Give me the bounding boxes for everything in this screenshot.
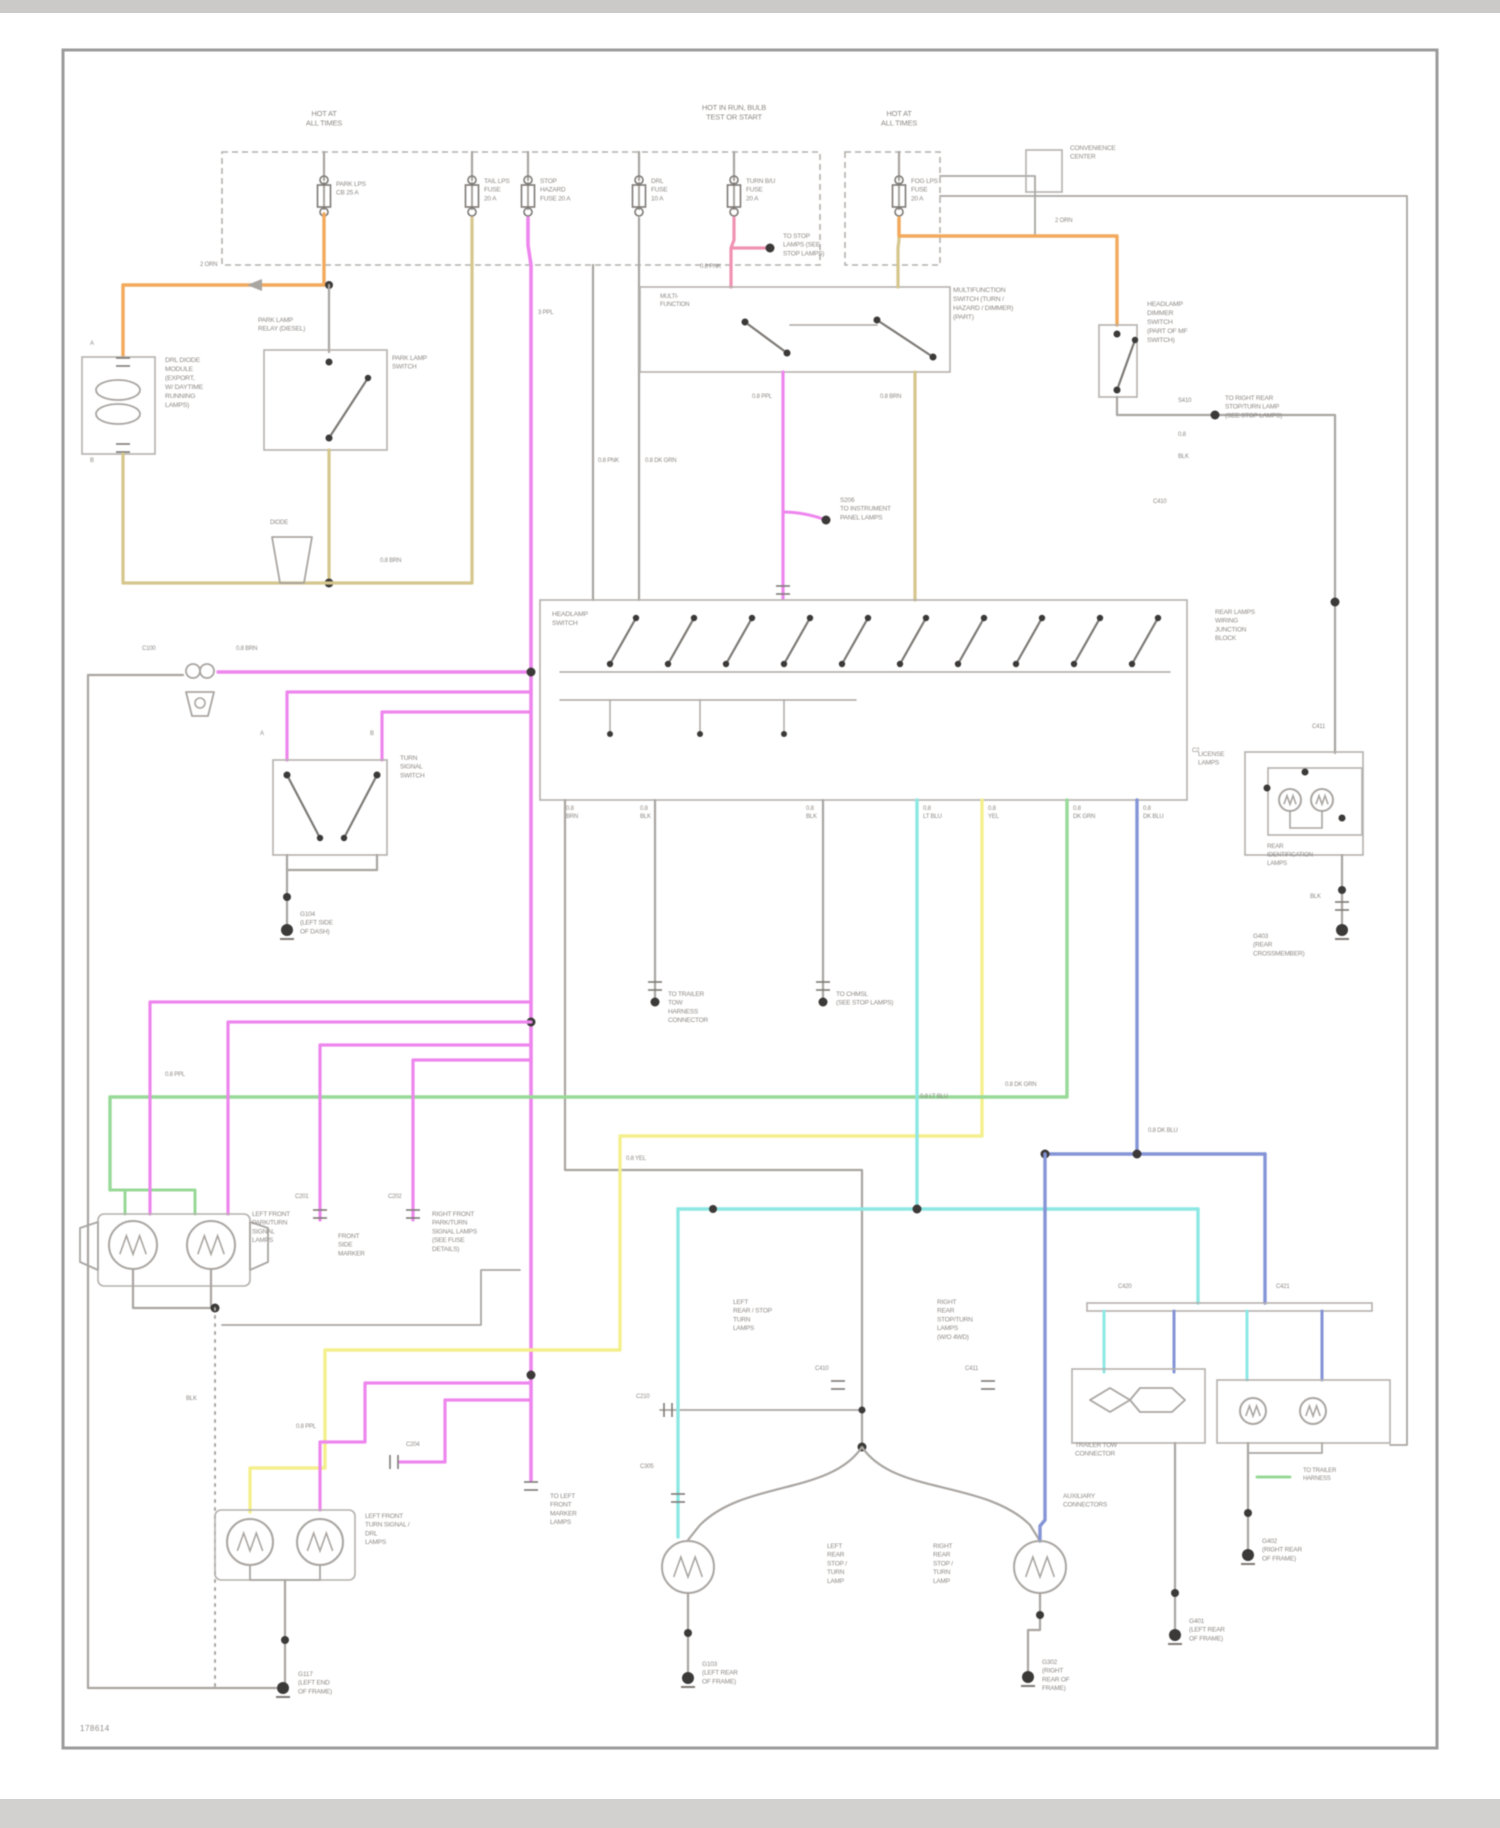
code-blk: BLK — [1178, 454, 1189, 460]
park-sw-blade-p1 — [326, 435, 332, 441]
rose-feed — [731, 218, 734, 287]
turn-lamp-join — [250, 1565, 320, 1580]
orange-code-2: 2 ORN — [1055, 218, 1072, 224]
hs-blade-1 — [610, 618, 636, 664]
lf-turn-label: LEFT FRONTTURN SIGNAL /DRLLAMPS — [365, 1513, 410, 1546]
ts-blade-1-p1 — [284, 772, 290, 778]
c2-label: C2 — [1192, 748, 1200, 754]
inline-connector-c100-2 — [200, 664, 214, 678]
lic-t2 — [1302, 769, 1309, 776]
c100-label: C100 — [142, 646, 156, 652]
pink-fan-1 — [150, 1002, 531, 1214]
hs-stub-dot3 — [781, 731, 787, 737]
hs-blade-4 — [784, 618, 810, 664]
exit-code-7: 0.8DK BLU — [1143, 806, 1163, 820]
mf-blade-2-p2 — [930, 354, 936, 360]
c421-label: C421 — [1276, 1284, 1290, 1290]
relay-coil-2 — [96, 404, 140, 424]
ppl-code: 0.8 PPL — [752, 394, 773, 400]
marker-label: FRONTSIDEMARKER — [338, 1233, 365, 1257]
g103 — [682, 1672, 694, 1684]
c410b-label: C410 — [815, 1366, 829, 1372]
rear-junction-label: REAR LAMPSWIRINGJUNCTIONBLOCK — [1215, 609, 1256, 642]
hs-blade-9-p2 — [1097, 615, 1103, 621]
c420-label: C420 — [1118, 1284, 1132, 1290]
fuse-block-hot-box-2 — [845, 152, 940, 265]
yellow-run — [250, 800, 982, 1512]
dim-blade-p2 — [1132, 337, 1138, 343]
hs-blade-7-p1 — [955, 661, 961, 667]
lf-marker-lamp-filament — [198, 1236, 224, 1254]
mf-label: MULTIFUNCTIONSWITCH (TURN /HAZARD / DIMM… — [953, 287, 1013, 321]
x-top-dot — [859, 1407, 866, 1414]
lr-stop-lamp — [662, 1541, 714, 1593]
hs-blade-1-p1 — [607, 661, 613, 667]
hot-label-3: HOT ATALL TIMES — [881, 109, 917, 128]
g403-label: G403(REARCROSSMEMBER) — [1253, 933, 1304, 957]
hs-blade-10-p2 — [1155, 615, 1161, 621]
splice-2-label: TO CHMSL(SEE STOP LAMPS) — [836, 991, 893, 1007]
turn-gnd-dot — [281, 1636, 289, 1644]
g402-label: G402(RIGHT REAROF FRAME) — [1262, 1538, 1302, 1562]
fuse1-label: PARK LPSCB 25 A — [336, 181, 367, 197]
hs-blade-3-p1 — [723, 661, 729, 667]
green-sub — [110, 1190, 195, 1214]
ts-splice — [283, 893, 291, 901]
mf-left-label: MULTI-FUNCTION — [660, 294, 689, 308]
code-dkgrn: 0.8 DK GRN — [645, 458, 676, 464]
g103-label: G103(LEFT REAROF FRAME) — [702, 1661, 738, 1685]
exit-code-4: 0.8LT BLU — [923, 806, 942, 820]
exit-code-2: 0.8BLK — [640, 806, 651, 820]
c411b-label: C411 — [965, 1366, 979, 1372]
rose-splice — [766, 244, 775, 253]
pink-fan-4 — [413, 1060, 531, 1220]
code-08: 0.8 — [1178, 432, 1187, 438]
hs-blade-6 — [900, 618, 926, 664]
hs-blade-4-p2 — [807, 615, 813, 621]
green-run — [110, 800, 1067, 1190]
orange-park-feed — [123, 214, 324, 357]
lamp-gnd-right — [222, 1270, 520, 1325]
splice-2 — [819, 998, 828, 1007]
lf-turn-lamp-group — [215, 1510, 355, 1580]
ts-blade-1-p2 — [317, 835, 323, 841]
lf-turn-lamp-2 — [297, 1519, 343, 1565]
sheet-border — [63, 50, 1437, 1748]
cyan-dot-2 — [709, 1205, 717, 1213]
hs-blade-9-p1 — [1071, 661, 1077, 667]
c410-label: C410 — [1153, 499, 1167, 505]
main-pink-bus — [528, 218, 531, 1480]
drl-relay-label: DRL DIODEMODULE(EXPORT,W/ DAYTIMERUNNING… — [165, 357, 204, 409]
lf-turn-lamp-2-filament — [307, 1533, 332, 1551]
park-sw-blade — [329, 378, 368, 438]
orange-code: 2 ORN — [200, 262, 217, 268]
trailer-label: TRAILER TOWCONNECTOR — [1075, 1442, 1118, 1458]
brn-code: 0.8 BRN — [236, 646, 257, 652]
brn-code-2: 0.8 BRN — [880, 394, 901, 400]
c411-label: C411 — [1312, 724, 1326, 730]
park-sw-top-label: PARK LAMPRELAY (DIESEL) — [258, 317, 305, 333]
fuse2-label: TAIL LPSFUSE20 A — [484, 178, 510, 202]
ltblu-code: 0.8 LT BLU — [920, 1094, 948, 1100]
multifunction-sw-box — [640, 287, 950, 372]
hs-blade-4-p1 — [781, 661, 787, 667]
lic-int-1 — [1290, 811, 1322, 828]
hs-stub-dot2 — [697, 731, 703, 737]
g117-label: G117(LEFT ENDOF FRAME) — [298, 1671, 332, 1695]
rear-feed-run — [1117, 397, 1335, 753]
license-below-label: REARIDENTIFICATIONLAMPS — [1267, 843, 1313, 867]
splice-1-label: TO TRAILERTOWHARNESSCONNECTOR — [668, 991, 708, 1024]
c201-label: C201 — [295, 1194, 309, 1200]
s410-splice — [1211, 411, 1220, 420]
aux-gnd-dot — [1244, 1509, 1252, 1517]
aux-lamp-1-filament — [1246, 1406, 1260, 1416]
dim-t1 — [1114, 331, 1121, 338]
splice-1 — [651, 998, 660, 1007]
aux-conn-label: AUXILIARYCONNECTORS — [1063, 1493, 1108, 1509]
exit-code-5: 0.8YEL — [988, 806, 1000, 820]
aux-lamp-2-filament — [1306, 1406, 1320, 1416]
g401 — [1169, 1629, 1181, 1641]
trailer-gnd-dot — [1171, 1589, 1179, 1597]
aux-conn-bar — [1087, 1303, 1372, 1311]
diode-label: DIODE — [270, 520, 288, 526]
hs-blade-6-p1 — [897, 661, 903, 667]
rose-code: 0.8 PNK — [700, 264, 721, 270]
fuse6-label: FOG LPSFUSE20 A — [911, 178, 939, 202]
left-edge-gnd-run — [88, 675, 276, 1688]
ts-label: TURNSIGNALSWITCH — [400, 755, 425, 779]
conv-center-label: CONVENIENCECENTER — [1070, 145, 1116, 161]
lr-lamps-label: LEFTREAR / STOPTURNLAMPS — [733, 1299, 772, 1332]
pink-fan-2 — [228, 1022, 531, 1214]
scan-bottom-strip — [0, 1799, 1500, 1828]
lf-park-lamp-filament — [120, 1236, 146, 1254]
g302-label: G302(RIGHTREAR OFFRAME) — [1042, 1659, 1070, 1692]
trailer-sym-2 — [1130, 1388, 1185, 1412]
lr-gnd-dot — [684, 1629, 692, 1637]
magenta-splice-label: S206TO INSTRUMENTPANEL LAMPS — [840, 497, 891, 521]
lf-park-label: LEFT FRONTPARK/TURNSIGNALLAMPS — [252, 1211, 290, 1244]
rr-stop-lamp — [1014, 1541, 1066, 1593]
relay-coil-1 — [96, 380, 140, 400]
ppl-code-2: 0.8 PPL — [165, 1072, 186, 1078]
rr-lamp-gnd — [1028, 1593, 1040, 1677]
lf-marker-lamp — [187, 1221, 235, 1269]
inline-connector-c100-1 — [186, 664, 200, 678]
ts-pin-b: B — [370, 731, 374, 737]
ts-out-2 — [287, 855, 377, 870]
ts-pin-a: A — [260, 731, 264, 737]
c305-label: C305 — [640, 1464, 654, 1470]
hs-blade-5-p1 — [839, 661, 845, 667]
hs-blade-2-p2 — [691, 615, 697, 621]
tan-code: 0.8 BRN — [380, 558, 401, 564]
blk-label: BLK — [186, 1396, 197, 1402]
pink-hook-1 — [320, 1383, 531, 1510]
lr-stop-lamp-filament — [674, 1557, 703, 1577]
x-leg-left — [688, 1447, 862, 1540]
conv-center-box — [1026, 150, 1062, 192]
pink-branch-2 — [287, 692, 531, 760]
license-lamp-1-filament — [1284, 796, 1296, 804]
lr-lamp-label: LEFTREARSTOP /TURNLAMP — [827, 1543, 847, 1585]
park-sw-label: PARK LAMPSWITCH — [392, 355, 427, 371]
rose-splice-label: TO STOPLAMPS (SEESTOP LAMPS) — [783, 233, 824, 257]
g402 — [1242, 1549, 1254, 1561]
drl-relay-box — [82, 357, 155, 454]
dim-blade-p1 — [1114, 387, 1120, 393]
g302 — [1022, 1671, 1034, 1683]
g104-label: G104(LEFT SIDEOF DASH) — [300, 911, 334, 935]
trailer-sym-1 — [1090, 1388, 1130, 1412]
ts-blade-2 — [344, 775, 377, 838]
park-lamp-sw-box — [264, 350, 387, 450]
rear-dot — [1331, 598, 1340, 607]
hs-blade-1-p2 — [633, 615, 639, 621]
pink-bus-code: 3 PPL — [538, 310, 554, 316]
blue-dot-1 — [1133, 1150, 1142, 1159]
s410-note: TO RIGHT REARSTOP/TURN LAMP(SEE STOP LAM… — [1225, 395, 1282, 419]
lic-blk: BLK — [1310, 894, 1321, 900]
relay-pin-a: A — [90, 341, 94, 347]
c210-label: C210 — [636, 1394, 650, 1400]
mf-blade-2 — [877, 320, 933, 357]
hs-blade-8 — [1016, 618, 1042, 664]
bus-dot-3 — [527, 1371, 536, 1380]
fuse3-label: STOPHAZARDFUSE 20 A — [540, 178, 571, 202]
license-lamp-inner — [1268, 768, 1362, 835]
license-lamp-1 — [1279, 789, 1301, 811]
hs-blade-5 — [842, 618, 868, 664]
relay-pin-b: B — [90, 458, 94, 464]
hs-stub-dot1 — [607, 731, 613, 737]
mf-blade-1-p2 — [784, 350, 790, 356]
headlamp-sw-label: HEADLAMPSWITCH — [552, 611, 588, 627]
hs-blade-10 — [1132, 618, 1158, 664]
hs-blade-7-p2 — [981, 615, 987, 621]
aux-lamp-1 — [1240, 1398, 1266, 1424]
exit-code-3: 0.8BLK — [806, 806, 817, 820]
hs-blade-2 — [668, 618, 694, 664]
hs-blade-10-p1 — [1129, 661, 1135, 667]
g401-label: G401(LEFT REAROF FRAME) — [1189, 1618, 1225, 1642]
diode-connector — [272, 537, 312, 583]
hs-blade-8-p2 — [1039, 615, 1045, 621]
c202-label: C202 — [388, 1194, 402, 1200]
lf-turn-lamp-1-filament — [237, 1533, 262, 1551]
aux-lamp-2 — [1300, 1398, 1326, 1424]
exterior-lamps-wiring-diagram: HOT ATALL TIMESHOT IN RUN, BULBTEST OR S… — [0, 13, 1500, 1799]
hot-label-1: HOT ATALL TIMES — [306, 109, 342, 128]
bus-dot-1 — [527, 668, 536, 677]
c204-label: C204 — [406, 1442, 420, 1448]
conv-center-elbow — [940, 176, 1035, 236]
rr-lamps-label: RIGHTREARSTOP/TURNLAMPS(W/O 4WD) — [937, 1299, 973, 1341]
lf-turn-lamp-1 — [227, 1519, 273, 1565]
rr-stop-lamp-filament — [1026, 1557, 1055, 1577]
pink-hook-2 — [400, 1400, 531, 1462]
hs-blade-7 — [958, 618, 984, 664]
lamp1-gnd — [133, 1269, 215, 1308]
hs-blade-2-p1 — [665, 661, 671, 667]
rr-lamp-label: RIGHTREARSTOP /TURNLAMP — [933, 1543, 953, 1585]
sealed-conn-circle — [195, 698, 205, 708]
trailer-conn-box — [1072, 1369, 1205, 1443]
license-label: LICENSELAMPS — [1198, 751, 1225, 767]
page-ref-arrow — [247, 279, 262, 291]
pink-branch-3 — [382, 712, 531, 760]
s410-label: S410 — [1178, 398, 1192, 404]
blue-left-drop — [1040, 1154, 1045, 1541]
g117 — [277, 1682, 289, 1694]
magenta-splice-curve — [783, 512, 826, 520]
magenta-splice — [822, 516, 831, 525]
park-sw-t1 — [326, 359, 333, 366]
rf-park-label: RIGHT FRONTPARK/TURNSIGNAL LAMPS(SEE FUS… — [432, 1211, 478, 1253]
rr-gnd-dot — [1036, 1611, 1044, 1619]
ts-blade-2-p1 — [374, 772, 380, 778]
x-leg-right — [862, 1447, 1040, 1541]
license-lamp-2 — [1311, 789, 1333, 811]
hs-blade-6-p2 — [923, 615, 929, 621]
cyan-dot-1 — [913, 1205, 922, 1214]
fuse4-label: DRLFUSE10 A — [651, 178, 668, 202]
hs-blade-9 — [1074, 618, 1100, 664]
ts-blade-1 — [287, 775, 320, 838]
pink-end-label: TO LEFTFRONTMARKERLAMPS — [550, 1493, 577, 1526]
pink-fan-3 — [320, 1045, 531, 1220]
dim-blade — [1117, 340, 1135, 390]
aux-gnd-stub — [1248, 1443, 1322, 1453]
screenshot-root: HOT ATALL TIMESHOT IN RUN, BULBTEST OR S… — [0, 0, 1500, 1828]
aux-lamp-box — [1217, 1380, 1390, 1443]
scan-top-strip — [0, 0, 1500, 13]
dimmer-label: HEADLAMPDIMMERSWITCH(PART OF MFSWITCH) — [1147, 301, 1188, 344]
g403 — [1336, 924, 1348, 936]
ppl-code-3: 0.8 PPL — [296, 1424, 317, 1430]
trailer-grn-label: TO TRAILERHARNESS — [1303, 1468, 1337, 1482]
hs-blade-8-p1 — [1013, 661, 1019, 667]
wiring-diagram-sheet: HOT ATALL TIMESHOT IN RUN, BULBTEST OR S… — [0, 13, 1500, 1799]
sealed-conn — [186, 692, 214, 716]
park-sw-blade-p2 — [365, 375, 371, 381]
grn-code: 0.8 DK GRN — [1005, 1082, 1036, 1088]
hs-blade-5-p2 — [865, 615, 871, 621]
fuse5-label: TURN B/UFUSE20 A — [746, 178, 776, 202]
yel-code: 0.8 YEL — [626, 1156, 647, 1162]
hot-label-2: HOT IN RUN, BULBTEST OR START — [702, 103, 766, 122]
hs-blade-3 — [726, 618, 752, 664]
tan-loop — [123, 218, 472, 583]
right-tall-run — [940, 196, 1407, 1445]
code-pnk: 0.8 PNK — [598, 458, 619, 464]
g104 — [281, 924, 293, 936]
lic-dot — [1338, 886, 1346, 894]
lic-t1 — [1264, 785, 1271, 792]
ts-blade-2-p2 — [341, 835, 347, 841]
mf-blade-1-p1 — [742, 319, 748, 325]
hs-blade-3-p2 — [749, 615, 755, 621]
lf-park-lamp — [109, 1221, 157, 1269]
lic-t3 — [1339, 815, 1346, 822]
diagram-code: 178614 — [80, 1724, 110, 1733]
dkblu-code: 0.8 DK BLU — [1148, 1128, 1178, 1134]
mf-blade-1 — [745, 322, 787, 353]
mf-blade-2-p1 — [874, 317, 880, 323]
exit-code-6: 0.8DK GRN — [1073, 806, 1095, 820]
license-lamp-2-filament — [1316, 796, 1328, 804]
exit-code-1: 0.8BRN — [566, 806, 578, 820]
